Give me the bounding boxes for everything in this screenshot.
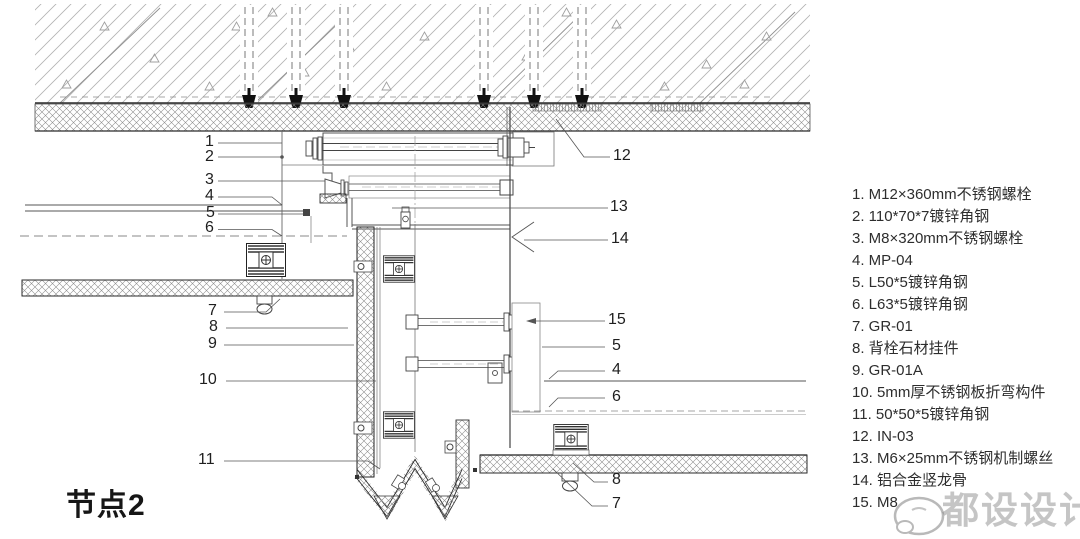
mullion-arrow-icon: [512, 222, 534, 252]
legend-item-8: 8. 背栓石材挂件: [852, 338, 1080, 360]
legend-item-5: 5. L50*5镀锌角钢: [852, 272, 1080, 294]
legend-item-2: 2. 110*70*7镀锌角钢: [852, 206, 1080, 228]
stone-hanger-clip-icon: [554, 424, 588, 453]
legend-item-9: 9. GR-01A: [852, 360, 1080, 382]
concrete-slab-hatch: [35, 4, 810, 103]
callout-11: 11: [198, 452, 215, 468]
callout-5b: 5: [612, 338, 621, 354]
callout-7b: 7: [612, 496, 621, 512]
callout-8: 8: [209, 319, 218, 335]
callout-4b: 4: [612, 362, 621, 378]
m12-bolt-head-icon: [306, 137, 322, 160]
legend-item-7: 7. GR-01: [852, 316, 1080, 338]
detail-drawing-page: 1 2 3 4 5 6 7 8 9 10 11 12 13 14 15 5 4 …: [0, 0, 1080, 539]
legend-item-11: 11. 50*50*5镀锌角钢: [852, 404, 1080, 426]
callout-15: 15: [608, 312, 626, 328]
legend-item-15: 15. M8: [852, 492, 1080, 514]
figure-title: 节点2: [66, 480, 146, 524]
callout-3: 3: [205, 172, 214, 188]
legend-item-6: 6. L63*5镀锌角钢: [852, 294, 1080, 316]
machine-screw-bracket-icon: [401, 207, 410, 228]
callout-6b: 6: [612, 389, 621, 405]
callout-8b: 8: [612, 472, 621, 488]
callout-13: 13: [610, 199, 628, 215]
m12-bolt-nut-icon: [498, 136, 529, 158]
legend-item-12: 12. IN-03: [852, 426, 1080, 448]
callout-12: 12: [613, 148, 631, 164]
left-ceiling: [20, 131, 353, 314]
callout-14: 14: [611, 231, 629, 247]
legend-item-3: 3. M8×320mm不锈钢螺栓: [852, 228, 1080, 250]
callout-6: 6: [205, 220, 214, 236]
hanger-bolt-icon: [563, 481, 578, 491]
stone-hanger-clip-icon: [383, 256, 414, 282]
top-assembly: [306, 107, 535, 448]
stone-hanger-clip-icon: [247, 244, 286, 277]
left-stone-band: [22, 280, 353, 296]
legend-item-4: 4. MP-04: [852, 250, 1080, 272]
right-stone-band: [480, 455, 807, 473]
legend-item-13: 13. M6×25mm不锈钢机制螺丝: [852, 448, 1080, 470]
m8-through-bolt-icons: [406, 313, 527, 383]
legend-list: 1. M12×360mm不锈钢螺栓 2. 110*70*7镀锌角钢 3. M8×…: [852, 184, 1080, 514]
stone-hanger-clip-icon: [383, 412, 414, 438]
callout-9: 9: [208, 336, 217, 352]
lower-right-ceiling: [445, 420, 807, 491]
callout-2: 2: [205, 149, 214, 165]
callout-10: 10: [199, 372, 217, 388]
legend-item-10: 10. 5mm厚不锈钢板折弯构件: [852, 382, 1080, 404]
legend-item-1: 1. M12×360mm不锈钢螺栓: [852, 184, 1080, 206]
callout-4: 4: [205, 188, 214, 204]
callout-7: 7: [208, 303, 217, 319]
legend-item-14: 14. 铝合金竖龙骨: [852, 470, 1080, 492]
